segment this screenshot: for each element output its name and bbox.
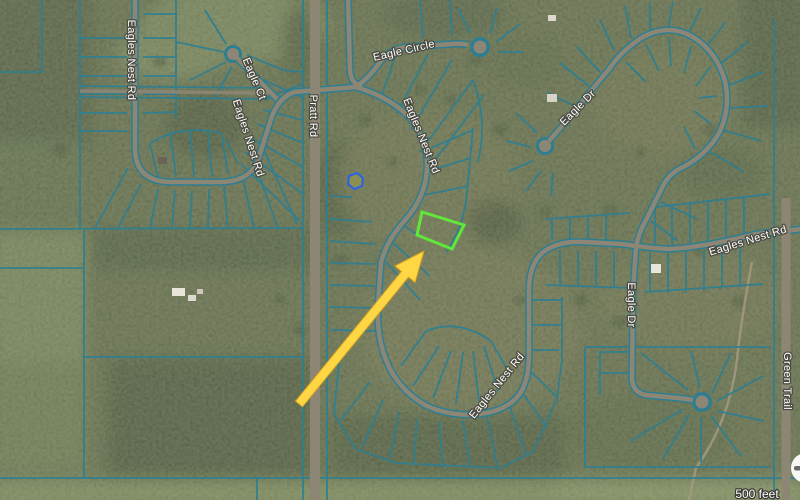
road-label-pratt-rd: Pratt Rd <box>307 95 319 138</box>
aerial-map[interactable]: Eagles Nest Rd Eagle Ct Eagles Nest Rd P… <box>0 0 800 500</box>
pond <box>348 173 363 189</box>
road-label-eagles-nest-left: Eagles Nest Rd <box>125 20 137 101</box>
minus-icon <box>794 466 800 471</box>
map-viewport[interactable]: Eagles Nest Rd Eagle Ct Eagles Nest Rd P… <box>0 0 800 500</box>
road-label-eagle-dr-lower: Eagle Dr <box>625 282 637 327</box>
scale-label: 500 feet <box>735 487 779 500</box>
road-label-green-trail: Green Trail <box>781 352 793 410</box>
